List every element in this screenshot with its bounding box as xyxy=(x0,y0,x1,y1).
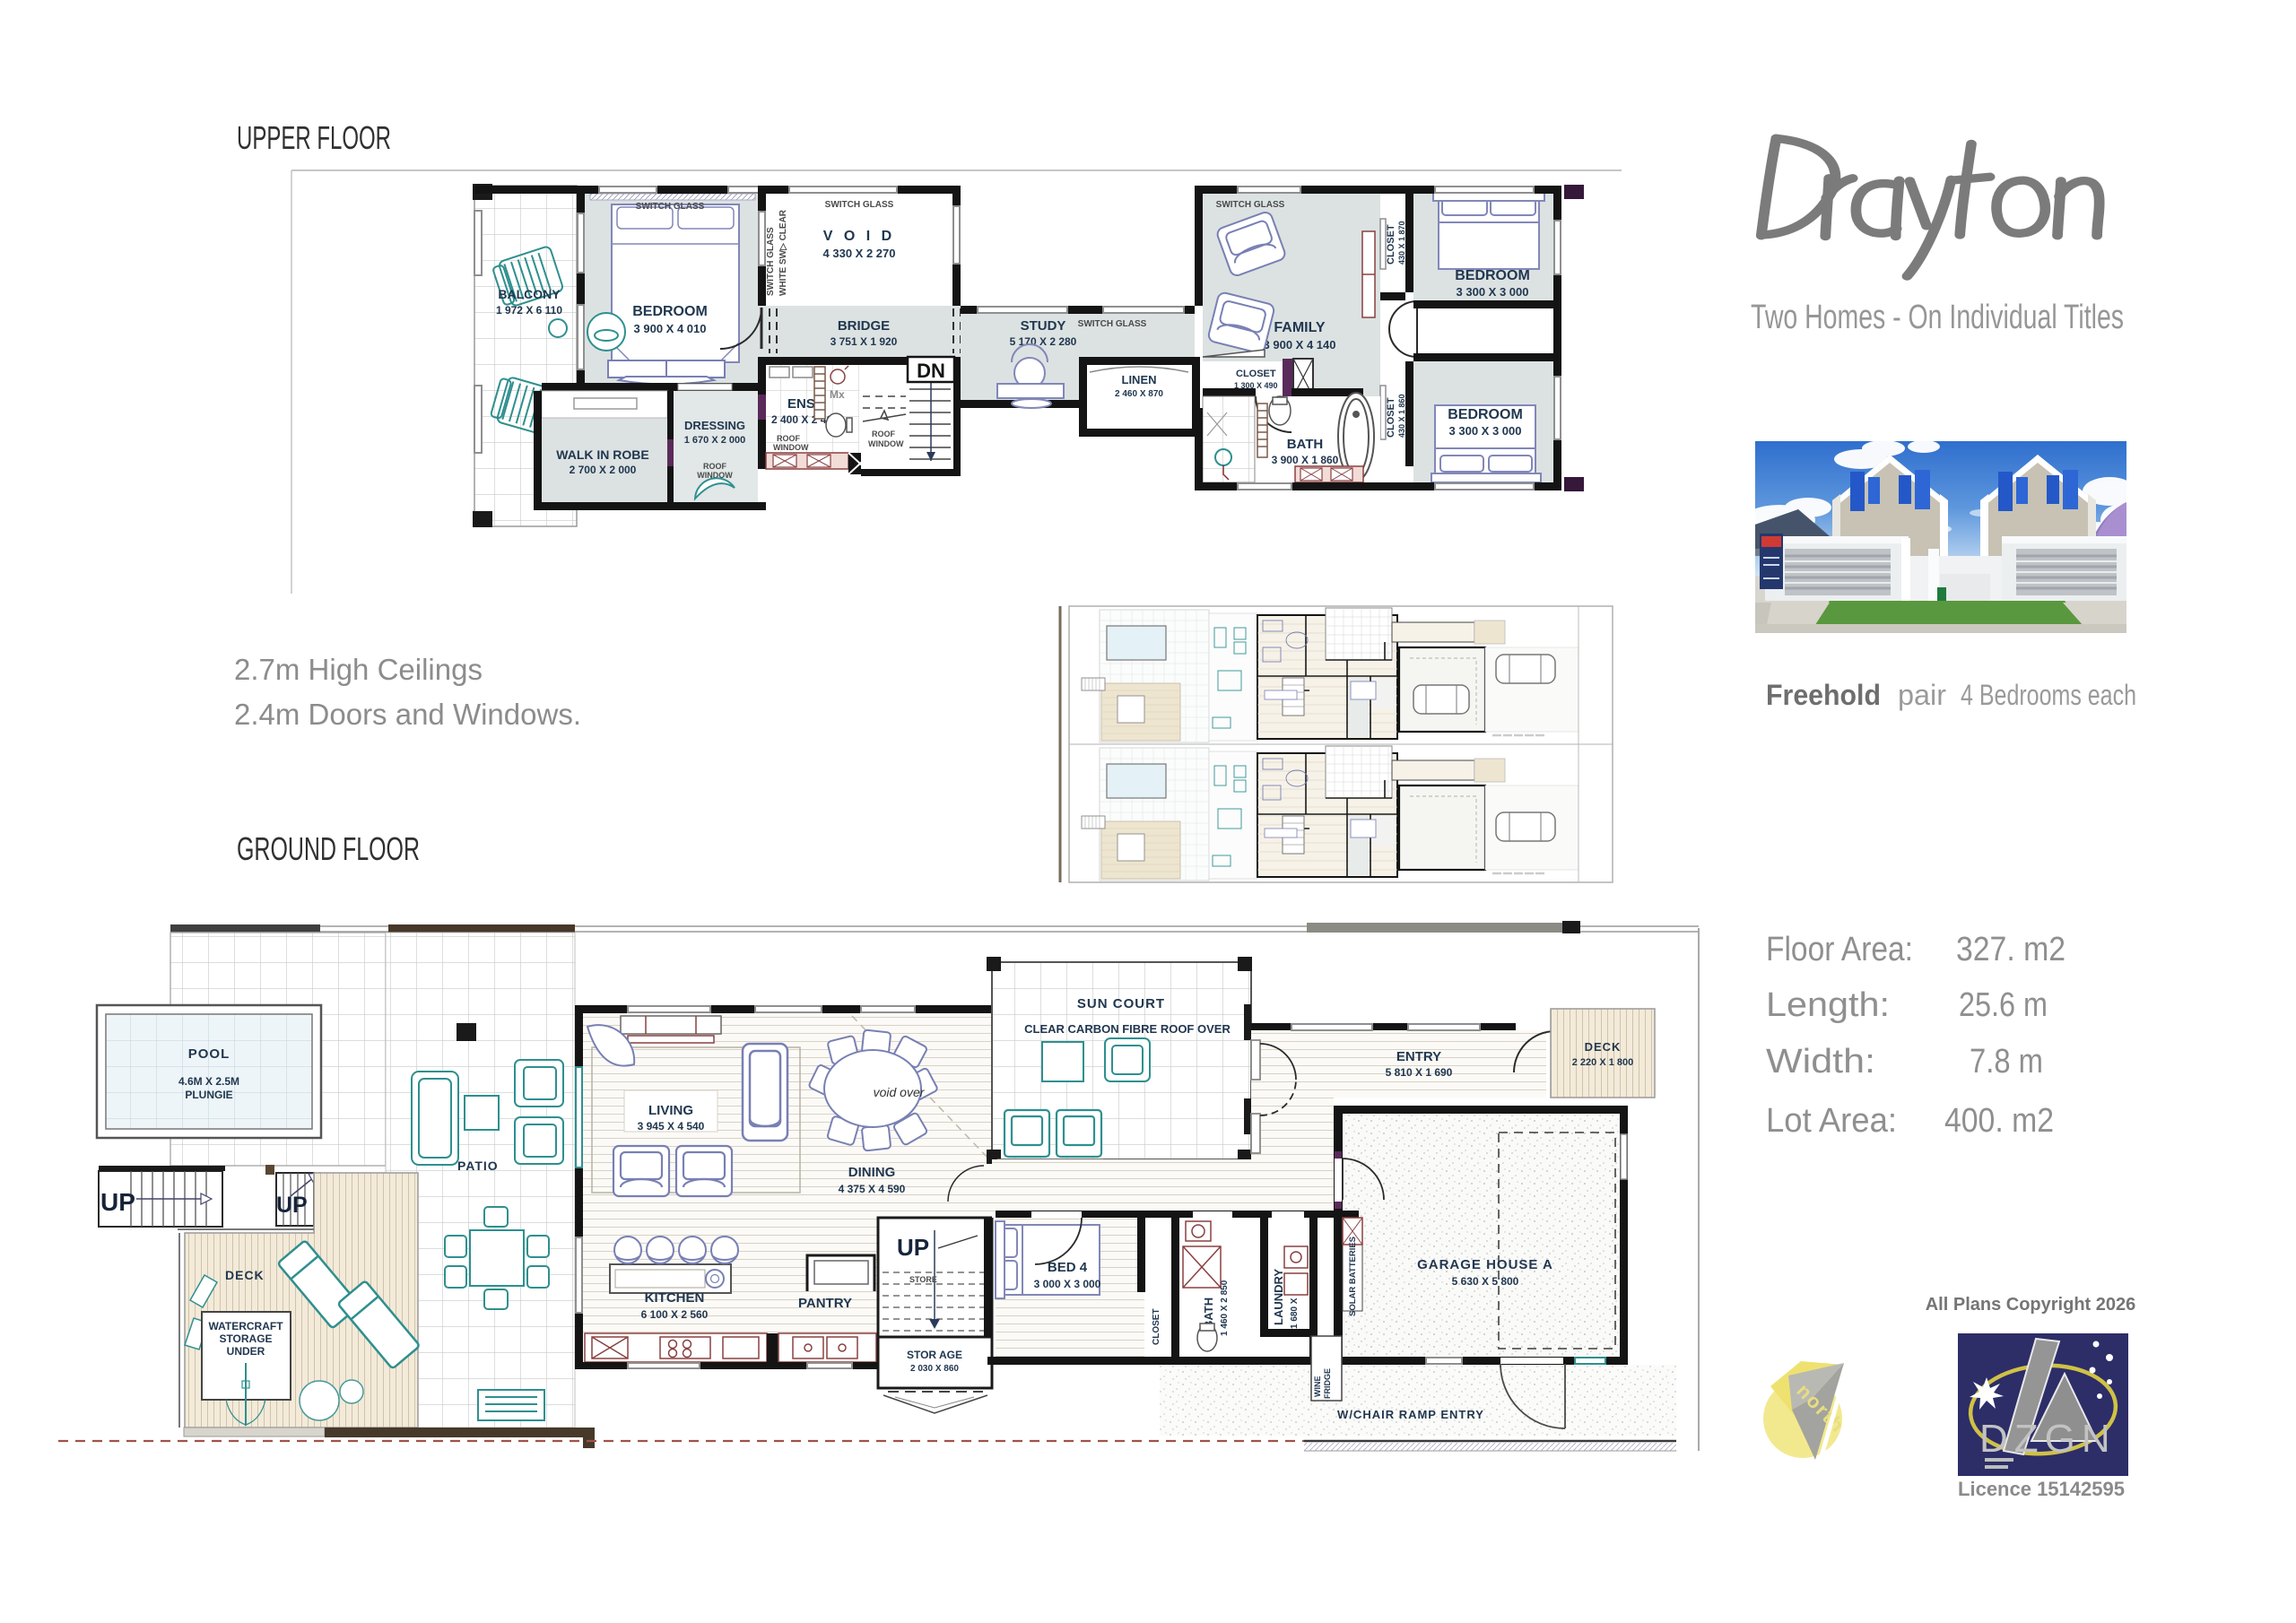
svg-text:6 100 X 2 560: 6 100 X 2 560 xyxy=(641,1308,709,1321)
svg-text:BEDROOM: BEDROOM xyxy=(632,304,708,319)
svg-text:5 810 X 1 690: 5 810 X 1 690 xyxy=(1386,1066,1453,1079)
svg-text:1 670 X 2 000: 1 670 X 2 000 xyxy=(684,435,746,446)
svg-text:Licence 15142595: Licence 15142595 xyxy=(1958,1478,2125,1500)
svg-text:SWITCH GLASS: SWITCH GLASS xyxy=(766,227,776,296)
svg-text:UP: UP xyxy=(897,1234,929,1261)
svg-text:UPPER FLOOR: UPPER FLOOR xyxy=(237,119,391,156)
svg-text:BEDROOM: BEDROOM xyxy=(1455,268,1530,283)
svg-text:5 630 X 5 800: 5 630 X 5 800 xyxy=(1452,1275,1519,1288)
svg-text:STORAGE: STORAGE xyxy=(219,1332,272,1345)
svg-text:ENS: ENS xyxy=(787,396,815,412)
svg-text:Width:: Width: xyxy=(1766,1043,1875,1081)
svg-text:DZGN: DZGN xyxy=(1979,1417,2117,1461)
svg-text:DINING: DINING xyxy=(848,1165,896,1180)
svg-text:SUN COURT: SUN COURT xyxy=(1077,996,1165,1011)
svg-text:KITCHEN: KITCHEN xyxy=(645,1290,705,1306)
svg-text:2 700 X 2 000: 2 700 X 2 000 xyxy=(570,464,637,476)
svg-text:ROOF: ROOF xyxy=(872,430,896,438)
svg-text:DECK: DECK xyxy=(1585,1040,1622,1054)
svg-text:WINDOW: WINDOW xyxy=(868,439,904,448)
svg-text:BALCONY: BALCONY xyxy=(498,287,561,301)
svg-text:Lot Area:: Lot Area: xyxy=(1766,1102,1897,1140)
svg-text:ENTRY: ENTRY xyxy=(1396,1049,1441,1064)
svg-text:2 460 X 870: 2 460 X 870 xyxy=(1115,389,1163,399)
svg-text:FRIDGE: FRIDGE xyxy=(1323,1368,1332,1399)
svg-text:UNDER: UNDER xyxy=(227,1345,265,1358)
svg-text:2.7m High Ceilings: 2.7m High Ceilings xyxy=(234,653,483,686)
svg-text:430 X 1 870: 430 X 1 870 xyxy=(1397,221,1406,265)
svg-text:WINE: WINE xyxy=(1313,1376,1322,1398)
svg-text:4 Bedrooms each: 4 Bedrooms each xyxy=(1961,679,2136,711)
svg-text:3 300 X 3 000: 3 300 X 3 000 xyxy=(1457,285,1529,299)
svg-text:SWITCH GLASS: SWITCH GLASS xyxy=(825,200,894,210)
svg-text:POOL: POOL xyxy=(188,1046,230,1062)
svg-text:W/CHAIR RAMP ENTRY: W/CHAIR RAMP ENTRY xyxy=(1337,1408,1484,1421)
svg-text:3 900 X 4 140: 3 900 X 4 140 xyxy=(1264,338,1336,352)
svg-text:SWITCH GLASS: SWITCH GLASS xyxy=(636,202,705,212)
svg-text:pair: pair xyxy=(1898,679,1946,711)
svg-text:BED 4: BED 4 xyxy=(1048,1260,1088,1275)
svg-text:UP: UP xyxy=(276,1193,308,1218)
svg-text:3 300 X 3 000: 3 300 X 3 000 xyxy=(1449,424,1522,438)
svg-text:400. m2: 400. m2 xyxy=(1944,1102,2054,1140)
svg-text:CLOSET: CLOSET xyxy=(1386,397,1396,438)
svg-text:CLEAR CARBON FIBRE ROOF OVER: CLEAR CARBON FIBRE ROOF OVER xyxy=(1024,1022,1231,1036)
svg-text:4.6M X 2.5M: 4.6M X 2.5M xyxy=(178,1075,239,1088)
svg-text:ROOF: ROOF xyxy=(777,434,801,443)
svg-text:BEDROOM: BEDROOM xyxy=(1448,407,1523,422)
svg-text:Length:: Length: xyxy=(1766,986,1890,1024)
svg-text:PLUNGIE: PLUNGIE xyxy=(185,1089,232,1101)
svg-text:DRESSING: DRESSING xyxy=(684,419,745,432)
svg-text:WALK IN ROBE: WALK IN ROBE xyxy=(556,447,648,462)
svg-text:3 751 X 1 920: 3 751 X 1 920 xyxy=(831,335,898,348)
svg-text:430 X 1 860: 430 X 1 860 xyxy=(1397,394,1406,438)
svg-text:PATIO: PATIO xyxy=(457,1159,499,1173)
svg-text:WINDOW: WINDOW xyxy=(773,443,809,452)
svg-text:Freehold: Freehold xyxy=(1766,679,1881,711)
svg-text:LAUNDRY: LAUNDRY xyxy=(1272,1269,1285,1325)
svg-text:327. m2: 327. m2 xyxy=(1956,931,2066,968)
svg-text:DECK: DECK xyxy=(225,1268,265,1282)
svg-text:SWITCH GLASS: SWITCH GLASS xyxy=(1078,319,1147,329)
svg-text:All Plans Copyright 2026: All Plans Copyright 2026 xyxy=(1926,1295,2136,1315)
svg-text:GROUND FLOOR: GROUND FLOOR xyxy=(237,830,420,867)
svg-text:1 972 X 6 110: 1 972 X 6 110 xyxy=(496,304,562,317)
svg-text:UP: UP xyxy=(100,1188,135,1216)
svg-text:PANTRY: PANTRY xyxy=(798,1296,852,1311)
svg-text:void over: void over xyxy=(874,1085,926,1099)
svg-text:Two Homes - On Individual Titl: Two Homes - On Individual Titles xyxy=(1751,299,2124,336)
svg-text:Mx: Mx xyxy=(830,388,845,401)
svg-text:CLOSET: CLOSET xyxy=(1386,224,1396,265)
svg-text:SWITCH GLASS: SWITCH GLASS xyxy=(1216,200,1285,210)
svg-text:STORE: STORE xyxy=(909,1275,937,1284)
svg-text:ROOF: ROOF xyxy=(703,462,727,471)
svg-text:2.4m Doors and Windows.: 2.4m Doors and Windows. xyxy=(234,698,581,731)
svg-text:4 375 X 4 590: 4 375 X 4 590 xyxy=(839,1183,906,1195)
svg-text:4 330 X 2 270: 4 330 X 2 270 xyxy=(823,247,896,260)
svg-text:STUDY: STUDY xyxy=(1021,318,1066,334)
svg-text:WATERCRAFT: WATERCRAFT xyxy=(208,1320,283,1332)
svg-text:LIVING: LIVING xyxy=(648,1103,693,1118)
svg-text:25.6 m: 25.6 m xyxy=(1959,986,2048,1024)
svg-text:V O I D: V O I D xyxy=(823,229,895,244)
svg-text:CLOSET: CLOSET xyxy=(1236,369,1276,379)
svg-text:3 000 X 3 000: 3 000 X 3 000 xyxy=(1034,1278,1101,1290)
svg-text:LINEN: LINEN xyxy=(1122,373,1157,386)
svg-text:STOR AGE: STOR AGE xyxy=(907,1349,962,1361)
svg-text:3 945 X 4 540: 3 945 X 4 540 xyxy=(638,1120,705,1133)
svg-text:2 030 X 860: 2 030 X 860 xyxy=(910,1364,959,1374)
svg-text:5 170 X 2 280: 5 170 X 2 280 xyxy=(1010,335,1077,348)
svg-text:3 900 X 4 010: 3 900 X 4 010 xyxy=(634,322,707,335)
svg-text:BATH: BATH xyxy=(1287,437,1324,452)
svg-text:7.8 m: 7.8 m xyxy=(1970,1043,2043,1081)
svg-text:Floor Area:: Floor Area: xyxy=(1766,931,1913,968)
svg-text:CLOSET: CLOSET xyxy=(1152,1308,1161,1345)
svg-text:SOLAR BATTERIES: SOLAR BATTERIES xyxy=(1348,1237,1358,1316)
svg-text:FAMILY: FAMILY xyxy=(1274,320,1326,335)
svg-text:3 900 X 1 860: 3 900 X 1 860 xyxy=(1272,454,1339,466)
svg-text:GARAGE HOUSE A: GARAGE HOUSE A xyxy=(1417,1257,1553,1272)
svg-text:2 220 X 1 800: 2 220 X 1 800 xyxy=(1572,1057,1634,1068)
svg-text:DN: DN xyxy=(917,360,945,382)
svg-text:BRIDGE: BRIDGE xyxy=(838,318,890,334)
svg-text:WHITE SW▷ CLEAR: WHITE SW▷ CLEAR xyxy=(778,209,788,296)
